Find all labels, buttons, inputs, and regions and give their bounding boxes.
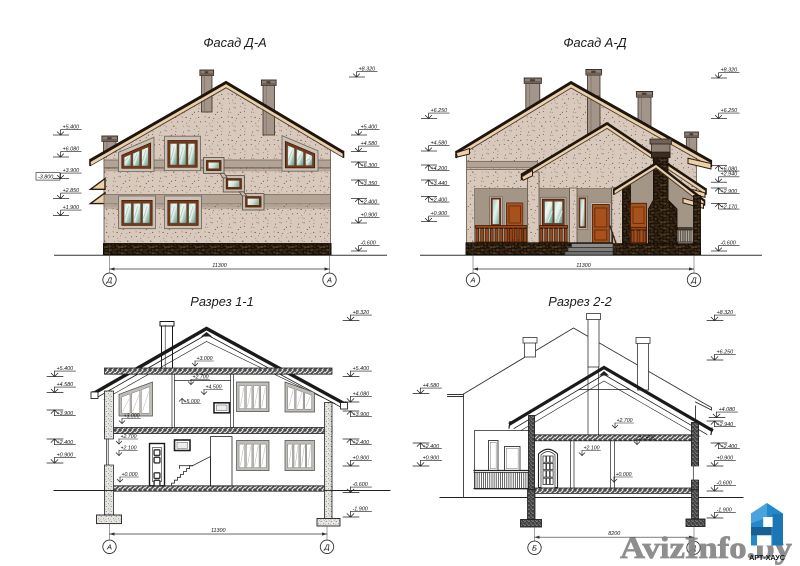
- svg-text:Д: Д: [690, 276, 697, 285]
- svg-text:+2.400: +2.400: [423, 444, 440, 450]
- svg-text:-3.800: -3.800: [38, 175, 53, 181]
- svg-text:11300: 11300: [211, 528, 226, 534]
- svg-text:+0.900: +0.900: [423, 455, 440, 461]
- svg-text:-1.900: -1.900: [717, 507, 732, 513]
- svg-text:+2.400: +2.400: [431, 197, 448, 203]
- svg-text:-0.600: -0.600: [361, 240, 376, 246]
- svg-text:-0.600: -0.600: [721, 240, 736, 246]
- svg-text:+3.000: +3.000: [124, 413, 140, 419]
- svg-text:+8.320: +8.320: [721, 67, 738, 73]
- svg-text:Б: Б: [532, 544, 537, 553]
- svg-text:+4.580: +4.580: [423, 383, 440, 389]
- svg-text:А: А: [106, 543, 112, 552]
- svg-text:+4.080: +4.080: [353, 391, 370, 397]
- svg-text:+3.440: +3.440: [431, 181, 448, 187]
- svg-text:+2.400: +2.400: [639, 434, 655, 440]
- svg-text:+2.100: +2.100: [584, 445, 600, 451]
- svg-text:-0.600: -0.600: [717, 480, 732, 486]
- svg-text:+4.080: +4.080: [719, 407, 736, 413]
- svg-text:+2.900: +2.900: [721, 189, 738, 195]
- svg-text:+4.580: +4.580: [57, 382, 74, 388]
- svg-text:+5.400: +5.400: [361, 124, 378, 130]
- svg-text:-0.600: -0.600: [353, 482, 368, 488]
- svg-text:+1.900: +1.900: [63, 205, 80, 211]
- svg-text:+6.250: +6.250: [721, 108, 738, 114]
- svg-text:+2.700: +2.700: [193, 374, 209, 380]
- svg-text:+4.580: +4.580: [361, 141, 378, 147]
- svg-text:+4.580: +4.580: [431, 140, 448, 146]
- svg-text:+2.170: +2.170: [721, 204, 738, 210]
- svg-text:А: А: [326, 276, 332, 285]
- svg-text:+0.900: +0.900: [361, 212, 378, 218]
- svg-text:+6.250: +6.250: [431, 108, 448, 114]
- svg-text:А: А: [469, 276, 475, 285]
- svg-text:+2.400: +2.400: [57, 440, 74, 446]
- svg-text:+2.700: +2.700: [121, 434, 137, 440]
- svg-text:+2.400: +2.400: [721, 444, 738, 450]
- svg-text:+5.400: +5.400: [57, 366, 74, 372]
- svg-text:+2.400: +2.400: [353, 440, 370, 446]
- svg-text:+0.000: +0.000: [616, 472, 632, 478]
- svg-text:Разрез 1-1: Разрез 1-1: [190, 294, 253, 309]
- svg-text:11300: 11300: [576, 263, 591, 269]
- svg-text:+5.400: +5.400: [63, 124, 80, 130]
- svg-text:+5.400: +5.400: [353, 366, 370, 372]
- svg-text:+4.200: +4.200: [431, 166, 448, 172]
- svg-text:+2.700: +2.700: [617, 418, 633, 424]
- svg-text:8200: 8200: [608, 531, 620, 537]
- svg-text:+0.900: +0.900: [353, 455, 370, 461]
- svg-text:+8.320: +8.320: [359, 66, 376, 72]
- svg-text:+2.940: +2.940: [721, 172, 738, 178]
- svg-text:Д: Д: [323, 543, 330, 552]
- svg-text:+6.250: +6.250: [717, 349, 734, 355]
- svg-text:+2.940: +2.940: [717, 422, 734, 428]
- svg-text:+8.320: +8.320: [717, 310, 734, 316]
- svg-text:+8.320: +8.320: [353, 310, 370, 316]
- svg-text:+3.900: +3.900: [57, 411, 74, 417]
- svg-text:+0.900: +0.900: [717, 455, 734, 461]
- svg-text:+6.300: +6.300: [361, 163, 378, 169]
- svg-text:+6.080: +6.080: [63, 146, 80, 152]
- svg-text:+3.900: +3.900: [63, 168, 80, 174]
- svg-text:-1.900: -1.900: [353, 506, 368, 512]
- svg-text:+5.000: +5.000: [184, 399, 200, 405]
- svg-text:+2.850: +2.850: [63, 188, 80, 194]
- svg-text:+3.000: +3.000: [197, 356, 213, 362]
- svg-text:Разрез 2-2: Разрез 2-2: [548, 294, 611, 309]
- svg-text:11300: 11300: [212, 263, 227, 269]
- svg-text:Д: Д: [106, 276, 113, 285]
- svg-text:+2.400: +2.400: [361, 199, 378, 205]
- svg-text:АРТ-ХАУС: АРТ-ХАУС: [749, 553, 786, 562]
- svg-text:+0.900: +0.900: [431, 211, 448, 217]
- svg-text:+2.100: +2.100: [121, 445, 137, 451]
- svg-text:+0.000: +0.000: [122, 472, 138, 478]
- svg-text:+3.350: +3.350: [361, 181, 378, 187]
- svg-text:Фасад А-Д: Фасад А-Д: [563, 35, 626, 50]
- svg-text:+0.900: +0.900: [57, 452, 74, 458]
- svg-text:Фасад Д-А: Фасад Д-А: [203, 35, 266, 50]
- svg-text:+3.900: +3.900: [353, 412, 370, 418]
- svg-text:+4.500: +4.500: [206, 384, 222, 390]
